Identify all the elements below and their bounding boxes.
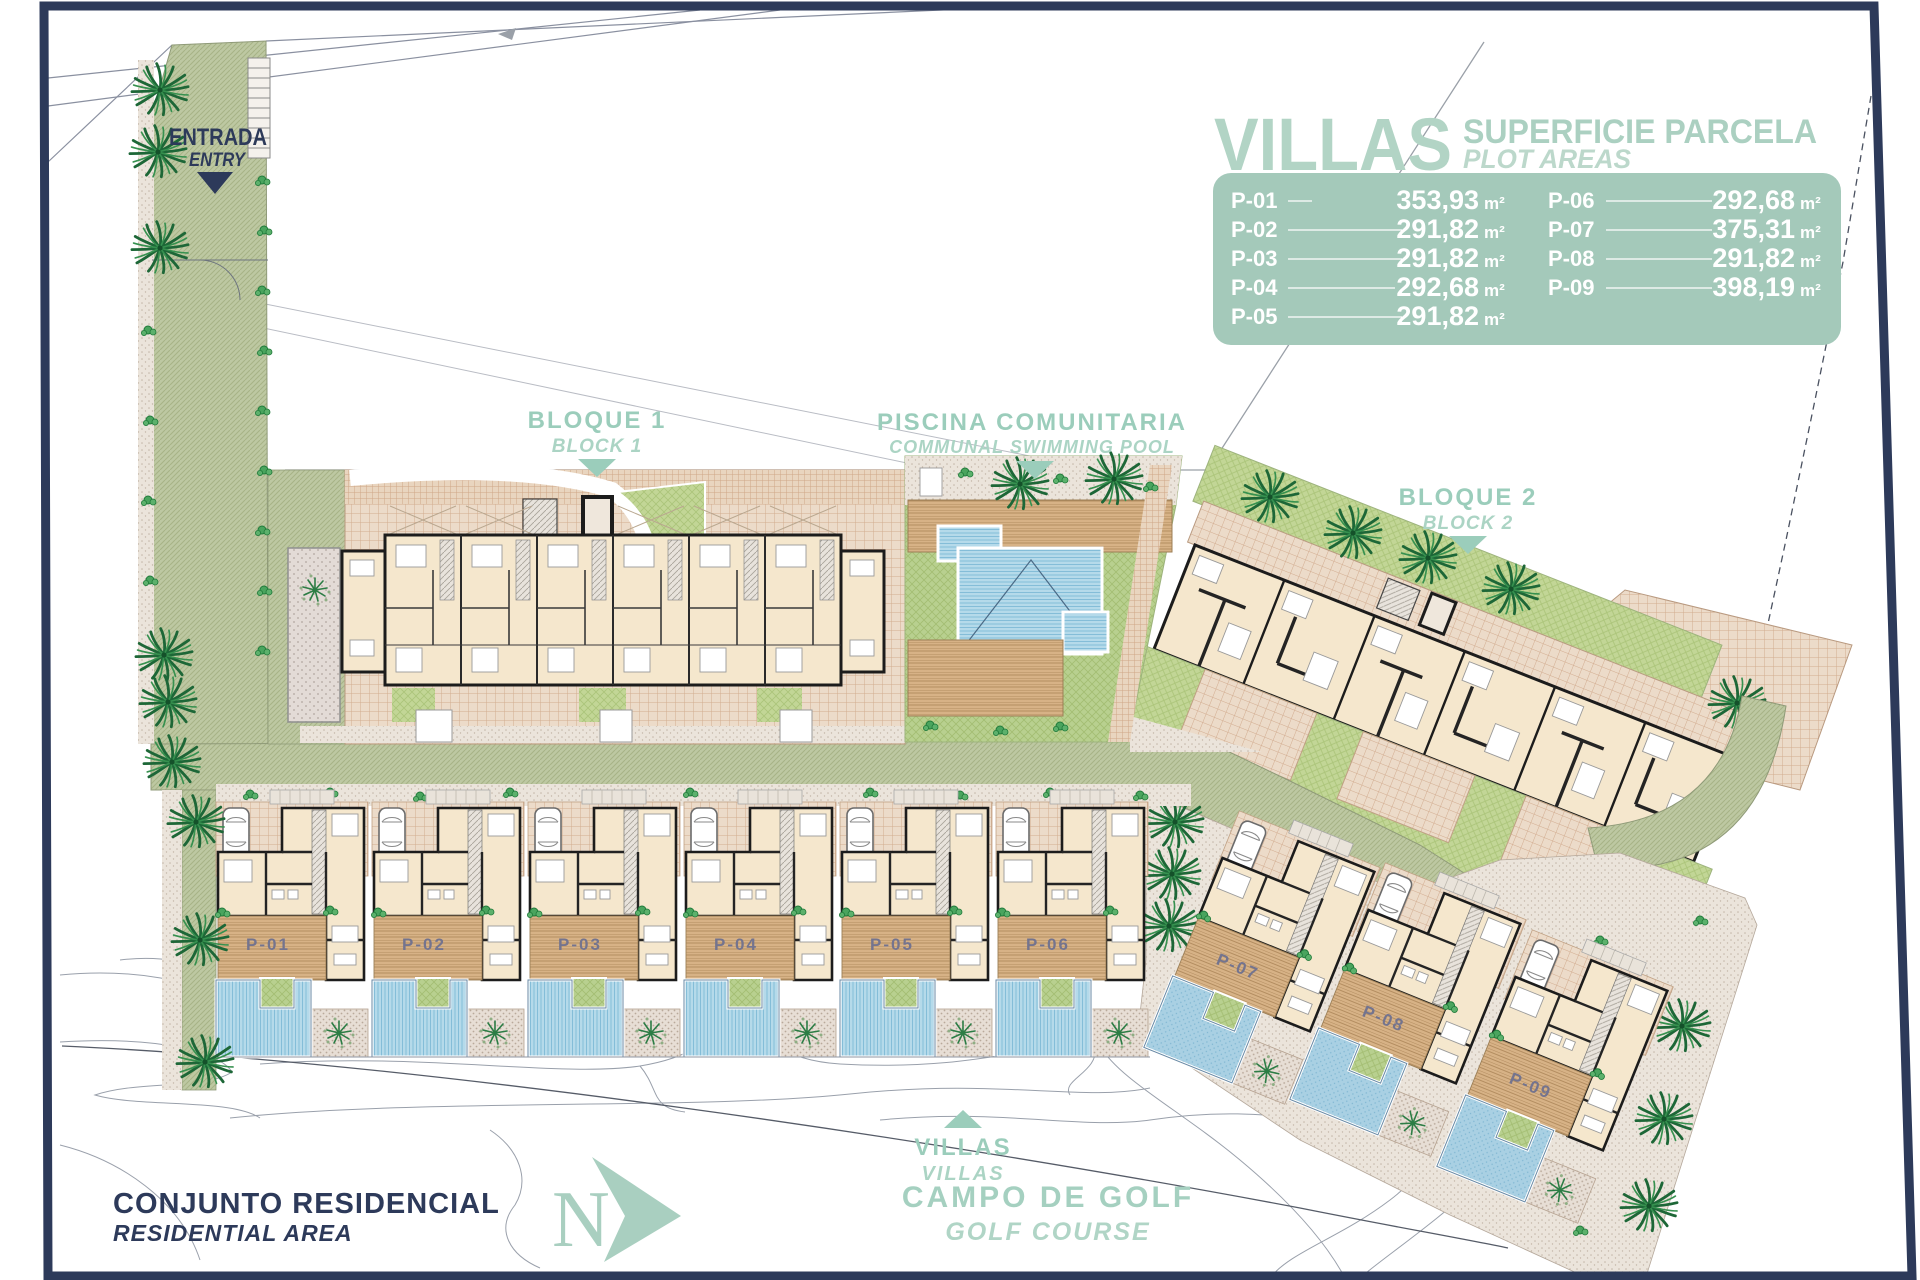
svg-text:P-09: P-09 bbox=[1548, 275, 1594, 300]
svg-text:P-02: P-02 bbox=[402, 935, 446, 954]
svg-text:m²: m² bbox=[1800, 194, 1821, 213]
svg-text:P-03: P-03 bbox=[558, 935, 602, 954]
svg-text:m²: m² bbox=[1484, 194, 1505, 213]
svg-text:P-04: P-04 bbox=[714, 935, 758, 954]
svg-text:375,31: 375,31 bbox=[1712, 214, 1795, 244]
svg-text:P-01: P-01 bbox=[246, 935, 290, 954]
svg-text:P-07: P-07 bbox=[1548, 217, 1594, 242]
svg-text:m²: m² bbox=[1800, 252, 1821, 271]
svg-text:P-03: P-03 bbox=[1231, 246, 1277, 271]
svg-text:P-02: P-02 bbox=[1231, 217, 1277, 242]
svg-text:P-01: P-01 bbox=[1231, 188, 1277, 213]
svg-text:m²: m² bbox=[1484, 281, 1505, 300]
svg-text:ENTRADA: ENTRADA bbox=[169, 124, 267, 151]
svg-text:COMMUNAL SWIMMING POOL: COMMUNAL SWIMMING POOL bbox=[889, 437, 1175, 457]
svg-text:291,82: 291,82 bbox=[1712, 243, 1795, 273]
svg-text:CONJUNTO RESIDENCIAL: CONJUNTO RESIDENCIAL bbox=[113, 1188, 500, 1220]
svg-text:292,68: 292,68 bbox=[1396, 272, 1479, 302]
svg-text:353,93: 353,93 bbox=[1396, 185, 1479, 215]
svg-text:291,82: 291,82 bbox=[1396, 301, 1479, 331]
svg-text:P-06: P-06 bbox=[1026, 935, 1070, 954]
svg-text:m²: m² bbox=[1484, 252, 1505, 271]
svg-text:m²: m² bbox=[1484, 310, 1505, 329]
svg-text:BLOQUE 2: BLOQUE 2 bbox=[1399, 484, 1538, 511]
svg-text:291,82: 291,82 bbox=[1396, 214, 1479, 244]
svg-text:P-06: P-06 bbox=[1548, 188, 1594, 213]
svg-text:CAMPO DE GOLF: CAMPO DE GOLF bbox=[902, 1181, 1194, 1214]
svg-text:N: N bbox=[552, 1176, 610, 1264]
svg-text:PISCINA COMUNITARIA: PISCINA COMUNITARIA bbox=[877, 409, 1187, 436]
svg-text:BLOCK 2: BLOCK 2 bbox=[1423, 513, 1513, 534]
svg-text:m²: m² bbox=[1800, 223, 1821, 242]
svg-text:m²: m² bbox=[1800, 281, 1821, 300]
svg-text:BLOCK 1: BLOCK 1 bbox=[552, 436, 642, 457]
svg-text:GOLF COURSE: GOLF COURSE bbox=[945, 1218, 1150, 1246]
svg-text:ENTRY: ENTRY bbox=[189, 150, 247, 171]
svg-text:m²: m² bbox=[1484, 223, 1505, 242]
svg-text:RESIDENTIAL AREA: RESIDENTIAL AREA bbox=[113, 1220, 353, 1246]
svg-text:PLOT AREAS: PLOT AREAS bbox=[1463, 144, 1631, 174]
svg-text:291,82: 291,82 bbox=[1396, 243, 1479, 273]
svg-text:292,68: 292,68 bbox=[1712, 185, 1795, 215]
svg-text:VILLAS: VILLAS bbox=[914, 1134, 1011, 1161]
svg-text:398,19: 398,19 bbox=[1712, 272, 1795, 302]
svg-text:P-08: P-08 bbox=[1548, 246, 1594, 271]
svg-text:P-04: P-04 bbox=[1231, 275, 1278, 300]
svg-text:P-05: P-05 bbox=[870, 935, 914, 954]
svg-text:BLOQUE 1: BLOQUE 1 bbox=[528, 407, 667, 434]
svg-text:P-05: P-05 bbox=[1231, 304, 1277, 329]
